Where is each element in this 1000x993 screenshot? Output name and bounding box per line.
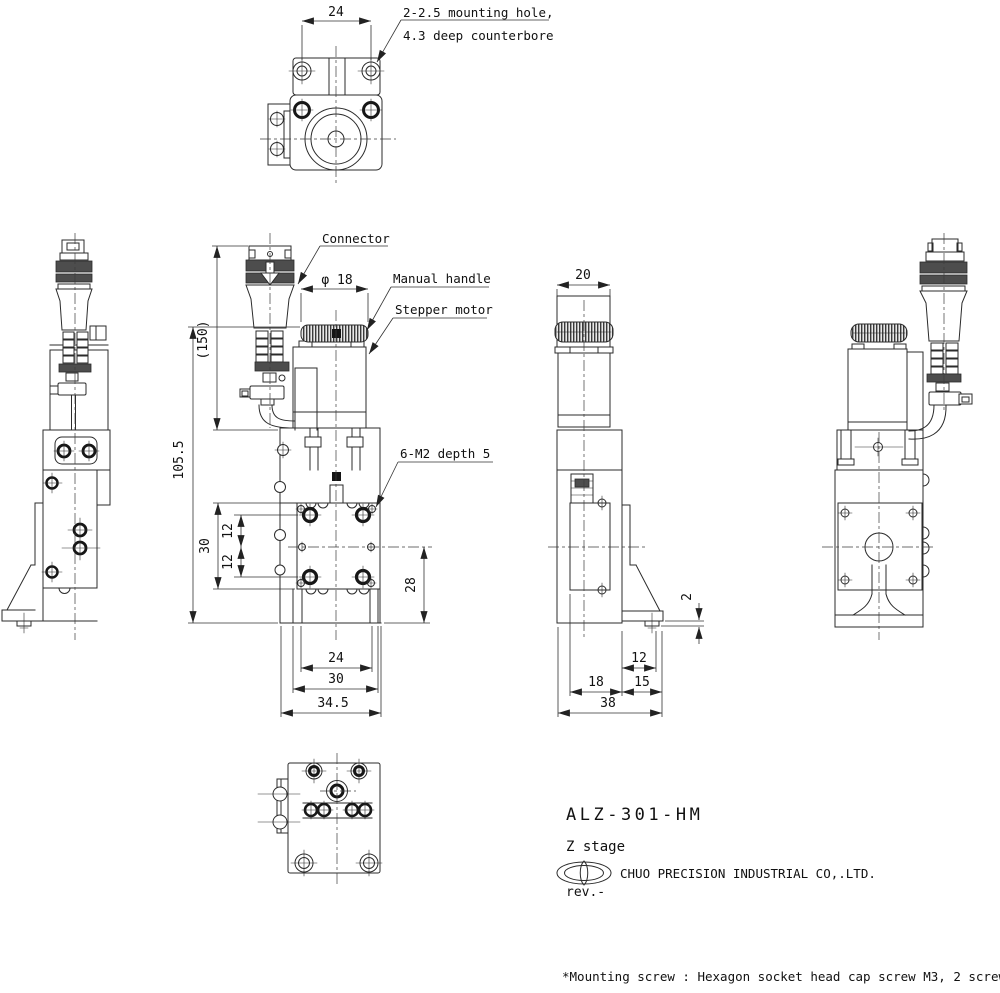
front-view-connector bbox=[240, 246, 295, 428]
model-number: ALZ-301-HM bbox=[566, 805, 703, 825]
top-view-callout: 2-2.5 mounting hole, 4.3 deep counterbor… bbox=[377, 5, 554, 62]
dim-text: 28 bbox=[404, 577, 419, 593]
right-view-top-block bbox=[837, 430, 923, 470]
front-view-cable bbox=[259, 405, 295, 428]
callout-line2: 4.3 deep counterbore bbox=[403, 28, 554, 43]
dim-text: 20 bbox=[575, 268, 591, 283]
dim-text: 18 bbox=[588, 675, 604, 690]
engineering-drawing-page: 24 2-2.5 mounting hole, 4.3 deep counter… bbox=[0, 0, 1000, 993]
right-view-connector bbox=[909, 239, 972, 439]
bottom-view bbox=[258, 753, 382, 885]
dim-text: (150) bbox=[196, 320, 211, 359]
front-view-label-manual-handle: Manual handle bbox=[367, 271, 491, 330]
dim-text: 34.5 bbox=[317, 696, 348, 711]
dim-text: 12 bbox=[221, 523, 236, 539]
top-view-mounting-plate bbox=[293, 58, 380, 95]
dim-text: φ 18 bbox=[321, 273, 352, 288]
mounting-screw-note: *Mounting screw : Hexagon socket head ca… bbox=[562, 969, 1000, 984]
front-view-label-tapped-holes: 6-M2 depth 5 bbox=[376, 446, 493, 507]
right-view-motor bbox=[848, 349, 907, 430]
middle-side-view: 20 2 12 18 15 38 bbox=[548, 268, 704, 717]
company-logo bbox=[557, 861, 611, 885]
callout-line1: 2-2.5 mounting hole, bbox=[403, 5, 554, 20]
dim-text: 24 bbox=[328, 651, 344, 666]
front-view-dim-12-lower: 12 bbox=[221, 547, 298, 577]
right-side-view bbox=[822, 233, 972, 640]
label-text: Manual handle bbox=[393, 271, 491, 286]
dim-text: 105.5 bbox=[172, 440, 187, 479]
company-name: CHUO PRECISION INDUSTRIAL CO,.LTD. bbox=[620, 866, 876, 881]
label-text: Stepper motor bbox=[395, 302, 493, 317]
side-view-dim-2: 2 bbox=[661, 593, 704, 644]
dim-text: 2 bbox=[680, 593, 695, 601]
side-view-body bbox=[557, 430, 622, 623]
label-text: Connector bbox=[322, 231, 390, 246]
side-view-dim-20: 20 bbox=[557, 268, 610, 296]
revision: rev.- bbox=[566, 885, 605, 900]
label-text: 6-M2 depth 5 bbox=[400, 446, 490, 461]
top-view-dim-24: 24 bbox=[302, 5, 371, 60]
front-view-label-stepper-motor: Stepper motor bbox=[369, 302, 493, 354]
dim-text: 12 bbox=[631, 651, 647, 666]
left-side-view bbox=[2, 233, 110, 640]
front-view-dim-phi18: φ 18 bbox=[301, 273, 368, 322]
product-type: Z stage bbox=[566, 839, 625, 855]
title-block: ALZ-301-HM Z stage CHUO PRECISION INDUST… bbox=[557, 805, 876, 900]
front-view-motor bbox=[293, 347, 366, 428]
dim-text: 38 bbox=[600, 696, 616, 711]
side-view-dim-38: 38 bbox=[558, 627, 662, 717]
dim-text: 30 bbox=[328, 672, 344, 687]
dim-text: 15 bbox=[634, 675, 650, 690]
dim-text: 30 bbox=[198, 538, 213, 554]
dim-text: 12 bbox=[221, 554, 236, 570]
front-view-dim-24-bottom: 24 bbox=[301, 626, 372, 672]
top-view: 24 2-2.5 mounting hole, 4.3 deep counter… bbox=[260, 5, 554, 186]
front-view: φ 18 (150) 105.5 30 12 12 bbox=[172, 231, 493, 717]
dim-text: 24 bbox=[328, 5, 344, 20]
front-view-dim-12-upper: 12 bbox=[221, 515, 298, 547]
left-view-connector bbox=[50, 240, 106, 430]
drawing-canvas: 24 2-2.5 mounting hole, 4.3 deep counter… bbox=[0, 0, 1000, 993]
side-view-dim-12: 12 bbox=[622, 631, 656, 672]
front-view-dim-28: 28 bbox=[384, 547, 430, 623]
